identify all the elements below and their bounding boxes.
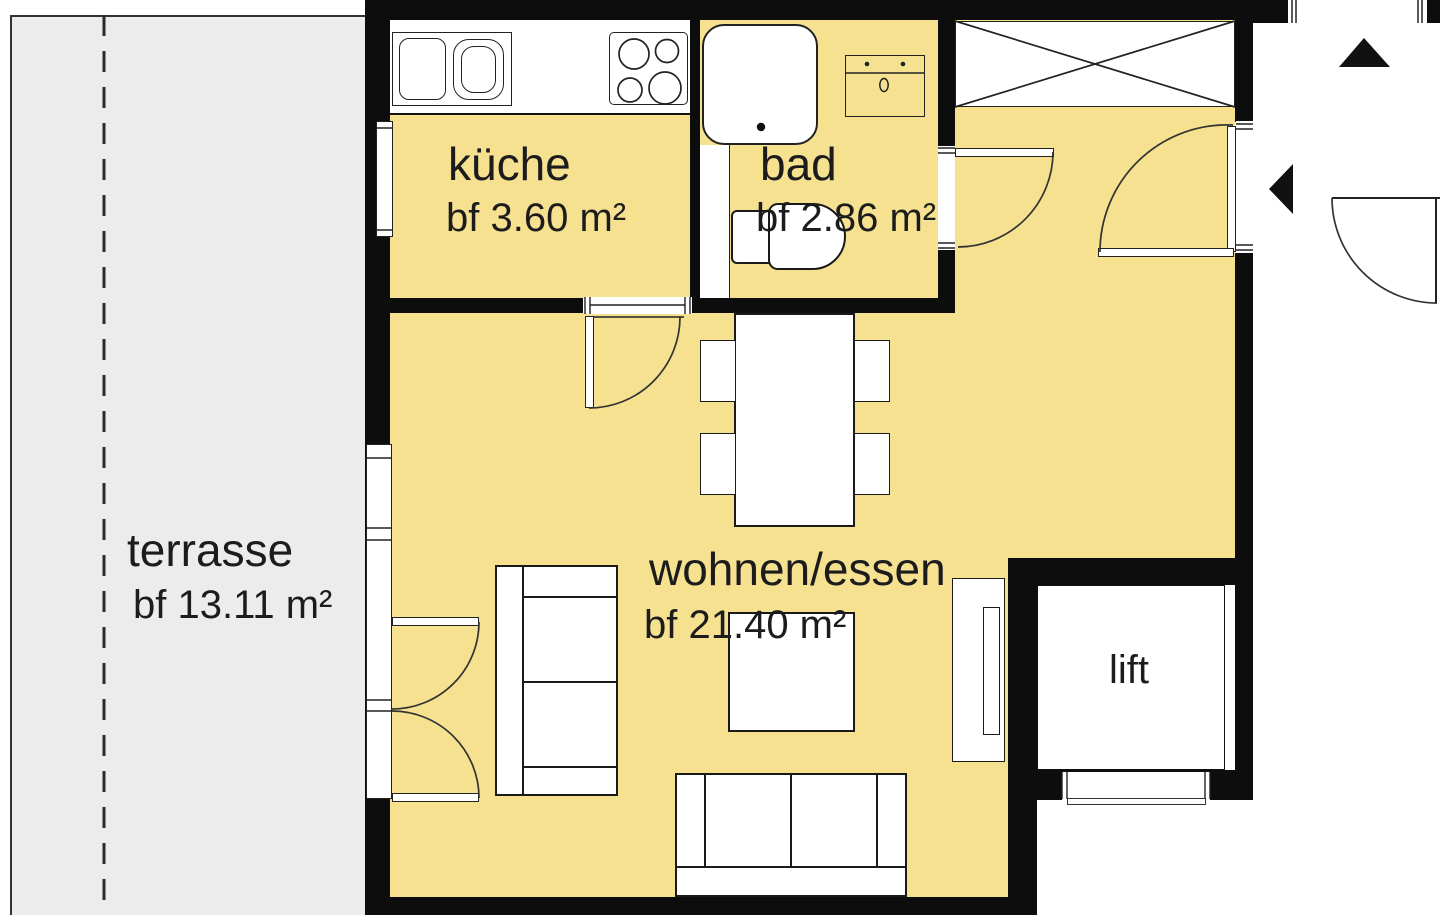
kitchen-label: küche (448, 141, 571, 187)
wall-lift-left (1008, 585, 1037, 915)
wall-hall-right (692, 298, 955, 313)
dining-table (734, 313, 855, 527)
wall-top-stairwell-left (1253, 0, 1288, 23)
chair (854, 340, 890, 402)
entrance-door-leaf-closed (1227, 126, 1236, 252)
wall-lift-right (1235, 585, 1253, 800)
stairwell-door-leaf (1332, 198, 1440, 303)
wall-hall-left (365, 298, 583, 313)
living-room-label: wohnen/essen (649, 546, 946, 592)
wall-left-middle (365, 236, 390, 445)
bathroom-label: bad (760, 141, 837, 187)
sofa-horizontal (675, 773, 907, 897)
wall-left-window-sliver (365, 122, 376, 236)
kitchen-window (376, 121, 393, 237)
wall-bath-right-upper (938, 20, 955, 146)
wall-top-stairwell-right (1427, 0, 1440, 23)
living-room-glazing (366, 444, 392, 799)
chair (700, 433, 736, 495)
wall-right-middle (1235, 253, 1253, 585)
floor-plan: terrasse bf 13.11 m² küche bf 3.60 m² ba… (0, 0, 1440, 915)
living-room-area-label: bf 21.40 m² (644, 605, 846, 645)
chair (854, 433, 890, 495)
wall-bottom (365, 897, 1008, 915)
plumbing-duct (700, 145, 730, 298)
lift-door-threshold (1067, 798, 1206, 805)
wall-lift-top (1008, 558, 1253, 585)
lift-label: lift (1109, 650, 1149, 690)
stairs-left-arrow-icon (1269, 164, 1293, 214)
wall-top (365, 0, 1253, 20)
chair (700, 340, 736, 402)
entrance-door-opening (1236, 121, 1253, 253)
stove-icon (609, 32, 688, 105)
balcony-door-leaf-bottom (392, 793, 479, 802)
wall-kitchen-bath (690, 20, 700, 298)
stairwell-window (1288, 0, 1427, 23)
balcony-door-leaf-top (392, 617, 479, 626)
entrance-door-leaf-open (1098, 248, 1234, 257)
terrace-area-label: bf 13.11 m² (133, 585, 332, 625)
terrace-floor (10, 15, 365, 915)
wardrobe-closet (955, 21, 1235, 107)
sink-drainer-inner-icon (461, 46, 496, 93)
terrace-label: terrasse (127, 527, 293, 573)
shower-icon (702, 24, 818, 145)
kitchen-area-label: bf 3.60 m² (446, 198, 626, 238)
lift-door-opening (1062, 772, 1210, 800)
sink-basin-icon (399, 38, 446, 100)
bathroom-door-leaf (955, 148, 1054, 157)
tv-icon (983, 607, 1000, 735)
wall-right-upper (1235, 20, 1253, 122)
wall-left-upper (365, 20, 390, 122)
stairs-up-arrow-icon (1339, 38, 1390, 67)
kitchen-door-opening (583, 297, 692, 314)
bathroom-door-opening (938, 146, 955, 250)
bathroom-area-label: bf 2.86 m² (756, 198, 936, 238)
sofa-vertical (495, 565, 618, 796)
kitchen-door-leaf (585, 316, 594, 408)
washbasin-icon (845, 55, 925, 117)
stairwell-door-arc (1332, 198, 1437, 303)
